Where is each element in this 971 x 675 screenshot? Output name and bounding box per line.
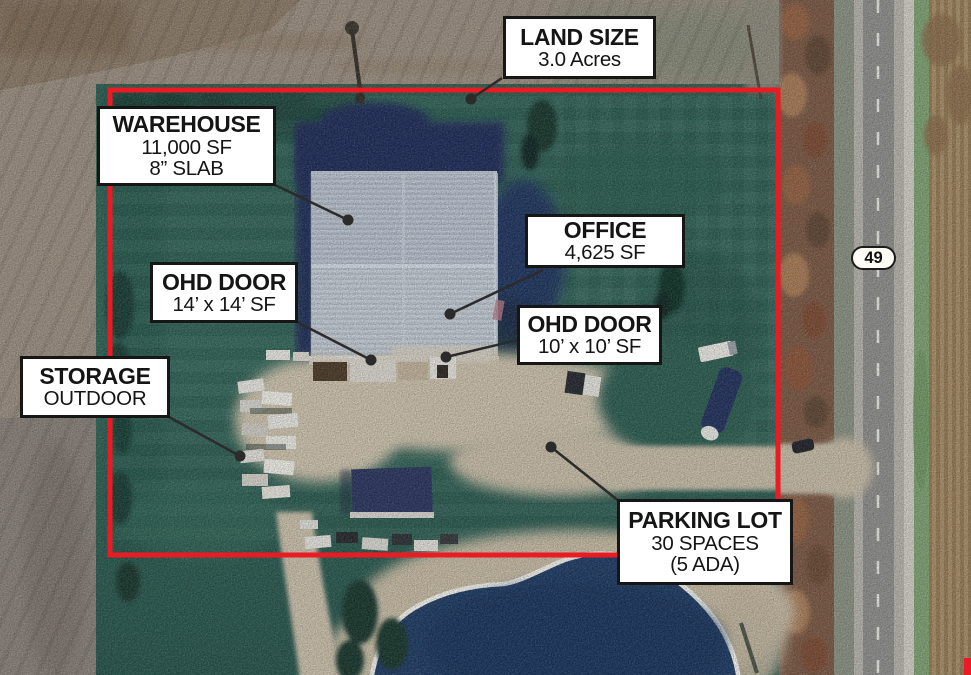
label-title: OHD DOOR [527,312,651,336]
label-storage-outdoor: STORAGE OUTDOOR [20,356,170,418]
label-title: OFFICE [564,218,647,242]
label-value: 10’ x 10’ SF [538,336,641,358]
label-title: OHD DOOR [162,270,286,294]
photo-grain [0,0,971,675]
label-title: LAND SIZE [520,25,639,49]
label-ohd-door-14x14: OHD DOOR 14’ x 14’ SF [150,262,298,323]
highway-number: 49 [864,249,882,268]
label-value: 11,000 SF [141,137,231,159]
label-value: OUTDOOR [44,388,147,410]
label-value: 8” SLAB [149,158,223,180]
label-value: 4,625 SF [565,242,646,264]
label-title: WAREHOUSE [112,112,260,136]
label-value: (5 ADA) [670,554,740,576]
label-value: 14’ x 14’ SF [172,294,275,316]
label-value: 3.0 Acres [538,49,621,71]
label-parking-lot: PARKING LOT 30 SPACES (5 ADA) [617,499,793,585]
highway-49-shield: 49 [851,246,896,270]
label-title: PARKING LOT [628,508,781,532]
label-office: OFFICE 4,625 SF [525,214,685,268]
satellite-photo [0,0,971,675]
aerial-property-photo: LAND SIZE 3.0 Acres WAREHOUSE 11,000 SF … [0,0,971,675]
label-ohd-door-10x10: OHD DOOR 10’ x 10’ SF [517,305,662,365]
label-land-size: LAND SIZE 3.0 Acres [503,16,656,79]
label-value: 30 SPACES [651,533,758,555]
label-warehouse: WAREHOUSE 11,000 SF 8” SLAB [97,106,276,186]
label-title: STORAGE [39,364,150,388]
